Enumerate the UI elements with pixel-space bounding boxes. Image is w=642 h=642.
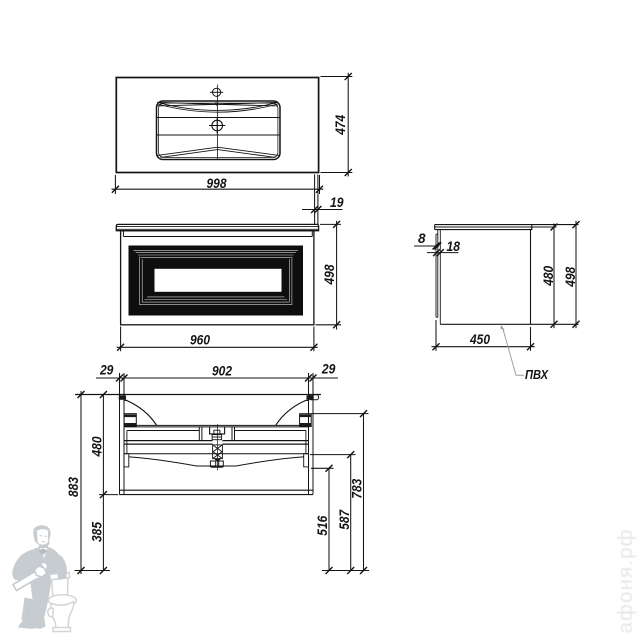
svg-text:ПВХ: ПВХ	[525, 367, 549, 382]
svg-text:960: 960	[190, 333, 210, 348]
svg-text:29: 29	[321, 361, 336, 376]
svg-text:480: 480	[90, 436, 105, 457]
svg-text:587: 587	[337, 508, 352, 529]
svg-text:афоня.рф: афоня.рф	[614, 530, 637, 634]
svg-text:480: 480	[541, 265, 556, 286]
svg-text:450: 450	[469, 332, 490, 347]
svg-text:19: 19	[330, 195, 344, 210]
svg-text:474: 474	[333, 114, 348, 135]
svg-text:18: 18	[447, 239, 461, 254]
svg-text:385: 385	[90, 522, 105, 542]
svg-text:783: 783	[350, 478, 365, 498]
svg-text:902: 902	[212, 364, 232, 379]
svg-text:883: 883	[66, 477, 81, 497]
svg-text:998: 998	[207, 176, 227, 191]
svg-text:498: 498	[563, 266, 578, 287]
svg-text:29: 29	[99, 363, 114, 378]
svg-text:8: 8	[418, 231, 426, 246]
svg-text:516: 516	[315, 515, 330, 535]
svg-text:498: 498	[322, 264, 337, 285]
